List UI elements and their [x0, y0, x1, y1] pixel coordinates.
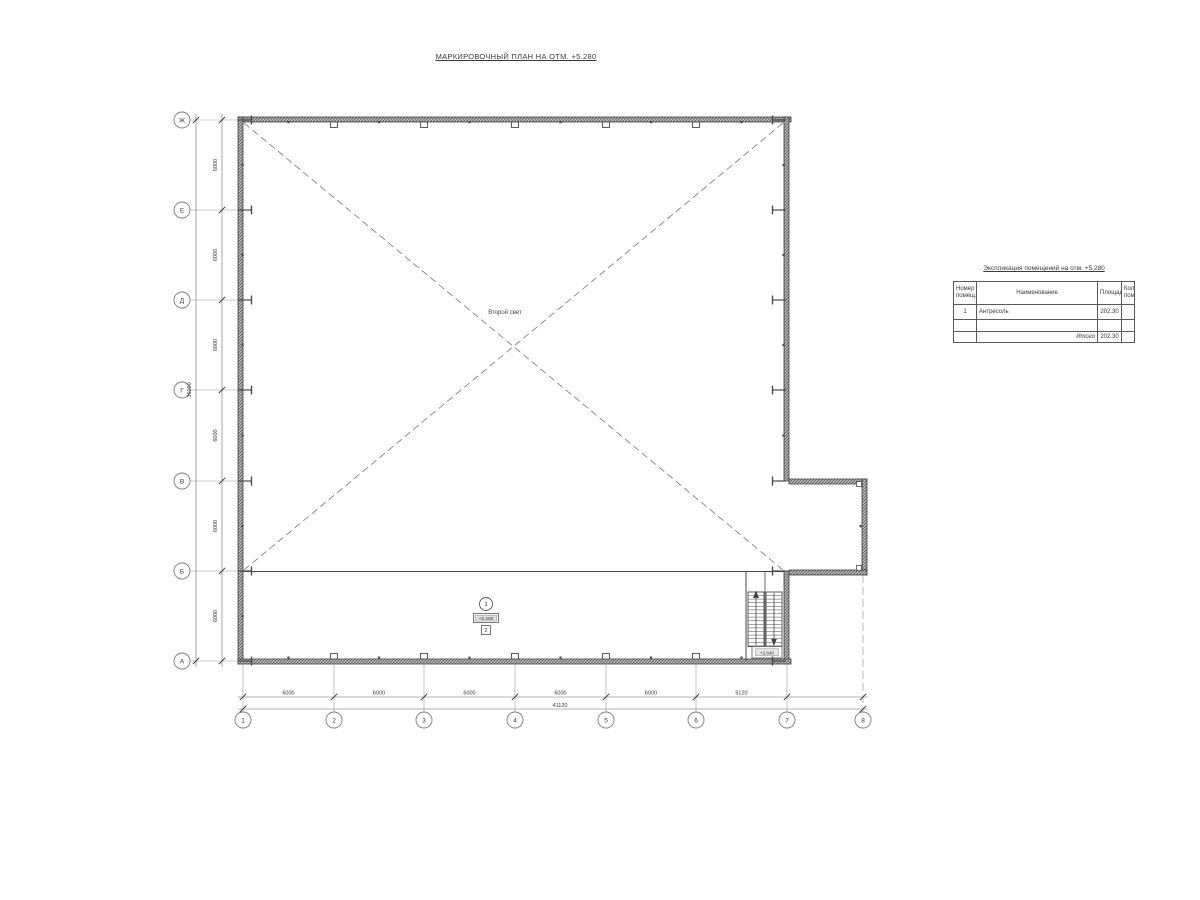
wall-stud-dot: [378, 121, 380, 123]
wall-column-square: [331, 654, 338, 660]
col-axis-label: 2: [332, 717, 336, 724]
dim-label-col: 6000: [645, 691, 657, 697]
room-elevation: +5.280: [479, 616, 494, 622]
wall-stud-dot: [242, 254, 244, 256]
wall-bumpout-top: [789, 479, 867, 484]
row-axis-label: Д: [180, 297, 185, 304]
wall-column-square: [693, 654, 700, 660]
wall-stud-dot: [468, 657, 470, 659]
room-name-cell: Антресоль: [977, 305, 1098, 320]
wall-column-square: [603, 654, 610, 660]
wall-stud-dot: [242, 434, 244, 436]
col-header-name: Наименование: [977, 282, 1098, 305]
dim-label-row: 6000: [213, 159, 219, 171]
col-axis-label: 1: [241, 717, 245, 724]
dim-label-row: 6000: [213, 249, 219, 261]
wall-stud-dot: [378, 657, 380, 659]
room-marker: 1 +5.280 2: [474, 598, 499, 635]
room-schedule: Экспликация помещений на отм. +5.280 Ном…: [953, 265, 1135, 343]
wall-column-square: [331, 122, 338, 128]
table-row: [954, 320, 1135, 332]
wall-stud-dot: [650, 121, 652, 123]
corner-column-square: [857, 482, 862, 487]
dim-label-row-total: 36000: [187, 382, 193, 397]
wall-stud-dot: [242, 344, 244, 346]
wall-stud-dot: [783, 164, 785, 166]
row-axis-label: А: [180, 658, 185, 665]
table-row: 1 Антресоль 202.30: [954, 305, 1135, 320]
corner-column-square: [857, 566, 862, 571]
wall-stud-dot: [559, 121, 561, 123]
wall-right-upper: [784, 117, 789, 481]
dim-label-row: 6000: [213, 339, 219, 351]
room-count-cell: [1122, 305, 1135, 320]
wall-bumpout-right: [862, 479, 867, 575]
room-name-cell: [977, 320, 1098, 332]
dim-label-col: 5120: [735, 691, 747, 697]
void-label: Второй свет: [488, 309, 522, 316]
wall-stud-dot: [740, 121, 742, 123]
room-area-cell: [1098, 320, 1122, 332]
wall-column-square: [421, 122, 428, 128]
dim-label-row: 6000: [213, 520, 219, 532]
stair-landing-elevation: +2.640: [760, 650, 775, 655]
wall-stud-dot: [783, 254, 785, 256]
room-schedule-table: Номер помещ. Наименование Площадь Кол. п…: [953, 281, 1135, 343]
room-schedule-title: Экспликация помещений на отм. +5.280: [953, 265, 1135, 272]
dim-label-col: 6000: [463, 691, 475, 697]
wall-stud-dot: [783, 344, 785, 346]
dim-label-col: 6000: [373, 691, 385, 697]
void-cross: [244, 123, 783, 570]
room-area-cell: 202.30: [1098, 305, 1122, 320]
dim-label-col-total: 41120: [553, 703, 568, 709]
stair: +2.640: [746, 572, 782, 661]
room-number-cell: 1: [954, 305, 977, 320]
col-axis-label: 5: [604, 717, 608, 724]
col-axis-label: 7: [785, 717, 789, 724]
wall-stud-dot: [650, 657, 652, 659]
total-count-cell: [1122, 332, 1135, 343]
wall-bumpout-bottom: [789, 570, 867, 575]
total-label-cell: Итого: [977, 332, 1098, 343]
wall-stud-dot: [783, 434, 785, 436]
col-header-number: Номер помещ.: [954, 282, 977, 305]
dim-label-col: 6000: [554, 691, 566, 697]
col-header-count: Кол. пом.: [1122, 282, 1135, 305]
dim-label-col: 6000: [282, 691, 294, 697]
row-axis-label: Е: [180, 207, 185, 214]
col-header-area: Площадь: [1098, 282, 1122, 305]
wall-column-square: [693, 122, 700, 128]
col-axis-label: 6: [694, 717, 698, 724]
wall-stud-dot: [740, 657, 742, 659]
axes-and-dimensions: ЖЕДГВБА123456786000600060006000600060003…: [174, 112, 871, 728]
wall-column-square: [512, 122, 519, 128]
dim-label-row: 6000: [213, 429, 219, 441]
room-finish-type: 2: [484, 628, 487, 634]
floor-plan-canvas: Второй свет +2.640 1 +5.280 2: [0, 0, 1200, 900]
wall-stud-dot: [242, 525, 244, 527]
row-axis-label: В: [180, 478, 184, 485]
wall-column-square: [512, 654, 519, 660]
wall-top: [238, 117, 791, 122]
wall-stud-dot: [287, 121, 289, 123]
room-number-cell: [954, 320, 977, 332]
col-axis-label: 3: [422, 717, 426, 724]
wall-stud-dot: [242, 615, 244, 617]
table-total-row: Итого 202.30: [954, 332, 1135, 343]
dim-label-row: 6000: [213, 610, 219, 622]
wall-right-lower: [784, 571, 789, 664]
row-axis-label: Г: [180, 387, 184, 394]
wall-stud-dot: [287, 657, 289, 659]
wall-stud-dot: [242, 164, 244, 166]
col-axis-label: 8: [861, 717, 865, 724]
wall-stud-dot: [559, 657, 561, 659]
drawing-sheet: МАРКИРОВОЧНЫЙ ПЛАН НА ОТМ. +5.280: [0, 0, 1200, 900]
room-count-cell: [1122, 320, 1135, 332]
row-axis-label: Ж: [179, 117, 185, 124]
total-area-cell: 202.30: [1098, 332, 1122, 343]
total-blank-cell: [954, 332, 977, 343]
col-axis-label: 4: [513, 717, 517, 724]
wall-stud-dot: [860, 525, 862, 527]
row-axis-label: Б: [180, 568, 184, 575]
wall-bottom: [238, 659, 791, 664]
wall-column-square: [421, 654, 428, 660]
wall-column-square: [603, 122, 610, 128]
wall-stud-dot: [468, 121, 470, 123]
